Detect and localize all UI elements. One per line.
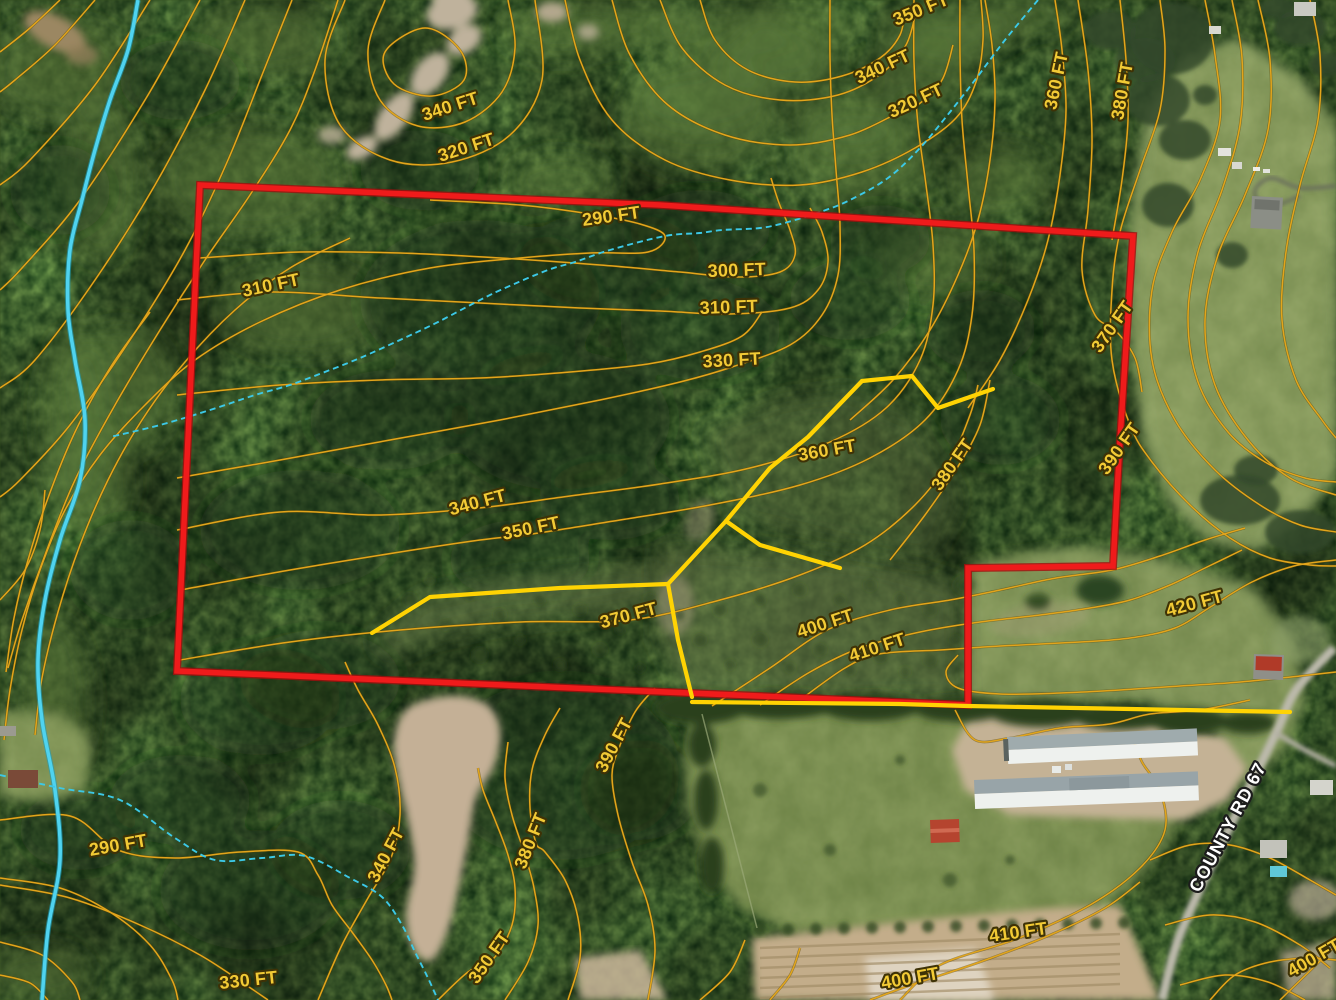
svg-text:330 FT: 330 FT <box>702 348 761 371</box>
svg-text:310 FT: 310 FT <box>699 296 758 318</box>
svg-text:300 FT: 300 FT <box>707 259 766 281</box>
